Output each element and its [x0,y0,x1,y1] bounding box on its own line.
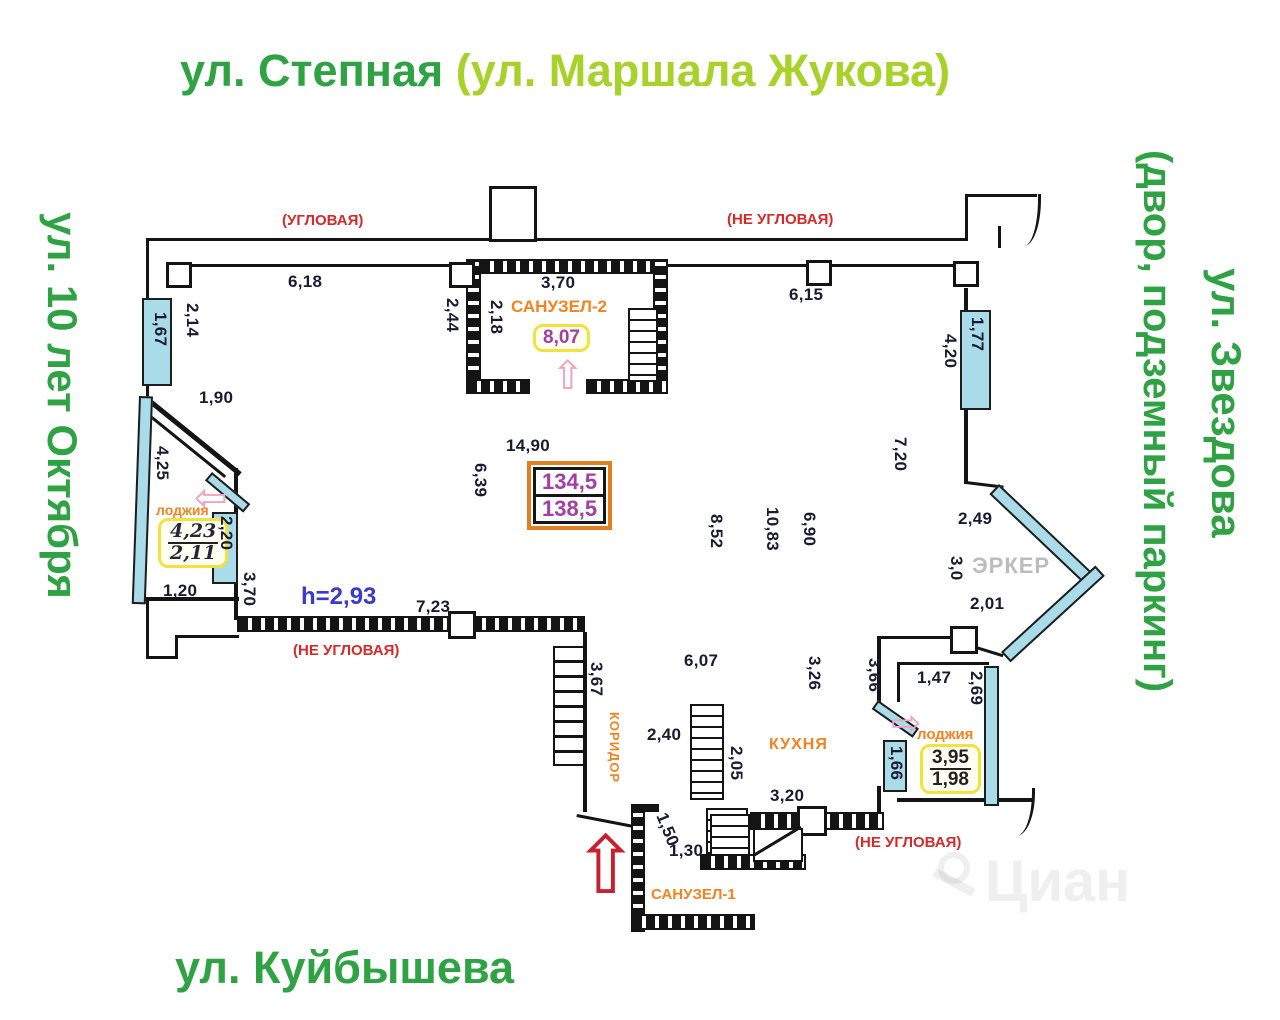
dimension-label: 2,05 [726,746,746,780]
area-box-loggia-right: 3,95 1,98 [920,744,981,794]
total-area-box: 134,5 138,5 [527,461,612,530]
dimension-label: 2,49 [958,509,992,529]
dimension-label: 1,20 [163,581,197,601]
column [950,626,978,654]
column [448,611,476,639]
dimension-label: 3,0 [946,556,966,581]
street-title-right-outer: ул. Звездова [1202,268,1250,538]
dimension-label: 2,44 [442,298,462,332]
sanuzel2-fixtures [628,308,658,382]
dimension-label: 6,90 [799,512,819,546]
loggia-left-area-top: 4,23 [168,522,218,544]
window-loggia-left [132,396,153,604]
dimension-label: 14,90 [506,436,550,456]
dimension-label: 7,20 [890,437,910,471]
total-area-upper: 134,5 [533,467,606,497]
corner-annotation: (НЕ УГЛОВАЯ) [293,642,399,659]
room-label-kitchen: КУХНЯ [769,736,828,754]
dimension-label: 3,26 [804,656,824,690]
wall-bump-top [489,186,537,242]
bay-window-lower [1001,566,1105,663]
dimension-label: 4,20 [940,334,960,368]
kitchen-sink-diagonal [753,826,802,857]
wall-bottom-right-curve [1014,788,1035,836]
dimension-label: 7,23 [416,597,450,617]
room-label-erker: ЭРКЕР [972,553,1050,579]
window-2-69 [984,666,999,806]
main-entrance-arrow-icon: ⇧ [572,826,639,906]
street-title-right-inner: (двор, подземный паркинг) [1134,150,1179,692]
wall-top-right-curve [1022,194,1041,246]
entry-arrow-loggia-right-icon: ⇨ [891,706,921,742]
kitchen-fixture-stack [690,704,724,800]
corner-annotation: (НЕ УГЛОВАЯ) [727,211,833,228]
street-title-bottom: ул. Куйбышева [175,942,514,994]
column [953,261,979,287]
wall-top-right-v [965,194,968,240]
dimension-label: 1,67 [150,312,170,346]
dimension-label: 6,15 [789,285,823,305]
room-label-loggia-right: лоджия [917,726,973,743]
wall-loggia-right-bottom [897,798,1033,802]
area-box-sanuzel2: 8,07 [533,324,590,352]
dimension-label: 2,14 [182,303,202,337]
room-label-sanuzel1: САНУЗЕЛ-1 [651,886,736,903]
dimension-label: 10,83 [762,507,782,551]
entry-arrow-sanuzel2-icon: ⇧ [551,356,585,396]
floor-plan-page: ул. Степная (ул. Маршала Жукова) ул. 10 … [0,0,1280,1020]
loggia-left-area-bottom: 2,11 [168,544,218,564]
watermark-text: Циан [985,848,1130,915]
street-title-left: ул. 10 лет Октября [38,212,86,599]
corner-annotation: (УГЛОВАЯ) [282,212,363,229]
wall-sanuzel1-bottom [631,914,755,930]
entry-arrow-loggia-left-icon: ⇦ [194,478,228,518]
dimension-label: 1,50 [651,810,682,849]
wall-top-right-inner [998,226,1001,248]
room-label-sanuzel2: САНУЗЕЛ-2 [511,297,607,317]
dimension-label: 2,69 [966,671,986,705]
total-area-lower: 138,5 [533,497,606,524]
loggia-right-area-bottom: 1,98 [930,770,971,790]
wall-step-1 [146,599,149,659]
dimension-label: 2,18 [486,300,506,334]
wall-step-2 [146,656,178,659]
wall-left-upper [146,238,149,300]
dimension-label: 1,66 [886,746,906,780]
dimension-label: 3,67 [586,662,606,696]
wall-kitchen-right-lower [877,786,881,814]
wall-sanuzel2-top [466,259,668,274]
wall-corridor-dashed [237,616,585,632]
dimension-label: 3,70 [541,273,575,293]
room-label-corridor: КОРИДОР [607,712,622,783]
column [166,262,192,288]
dimension-label: 6,39 [470,463,490,497]
dimension-label: 3,20 [770,786,804,806]
dimension-label: 3,66 [864,658,884,692]
dimension-label: 6,07 [684,651,718,671]
wall-to-bay-column [881,636,953,639]
wall-top-outer [146,238,968,241]
wall-right-to-bay [964,404,968,484]
dimension-label: 1,90 [199,388,233,408]
dimension-label: 1,47 [917,668,951,688]
wall-step-3 [175,637,178,659]
loggia-right-area-top: 3,95 [930,748,971,770]
dimension-label: 2,01 [970,594,1004,614]
dimension-label: 3,70 [239,572,259,606]
dimension-label: 1,77 [967,317,987,351]
dimension-label: 6,18 [288,272,322,292]
wall-step-4 [175,635,239,638]
wall-loggia-right-top [897,662,989,665]
street-top-alt: (ул. Маршала Жукова) [456,45,950,96]
wardrobe-fixture [553,646,585,766]
dimension-label: 2,40 [647,725,681,745]
area-value-sanuzel2: 8,07 [543,327,580,348]
dimension-label: 2,20 [216,516,236,550]
column [806,260,832,286]
corner-annotation: (НЕ УГЛОВАЯ) [855,834,961,851]
street-title-top: ул. Степная (ул. Маршала Жукова) [180,45,950,97]
column [449,262,475,288]
dimension-label: 8,52 [706,514,726,548]
kitchen-sink [753,828,803,862]
dimension-label: 4,25 [152,446,172,480]
ceiling-height-label: h=2,93 [301,583,376,611]
wall-sanuzel2-bottom-left [466,379,530,394]
wall-below-column-right [964,288,968,312]
wall-loggia-right-left-stub [897,662,900,702]
street-top-main: ул. Степная [180,45,456,96]
